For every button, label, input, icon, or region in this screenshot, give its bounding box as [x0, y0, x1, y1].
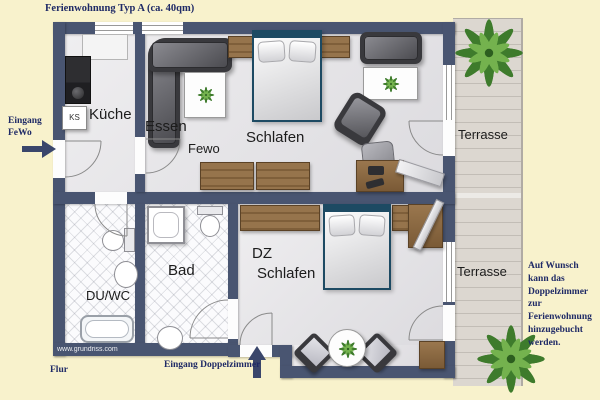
door-opening-fewo-entrance	[53, 140, 65, 178]
window-fewo-terrace	[443, 65, 455, 120]
door-opening-duwc	[95, 192, 127, 204]
label-dz-2: Schlafen	[257, 265, 315, 282]
label-flur: Flur	[50, 365, 68, 375]
fridge-box: KS	[62, 106, 87, 130]
round-table	[328, 329, 366, 367]
label-bath: Bad	[168, 262, 195, 279]
window-dining	[142, 22, 183, 34]
window-kitchen	[95, 22, 133, 34]
desk-item	[368, 166, 384, 175]
sideboard	[256, 162, 310, 190]
door-opening-kitchen	[135, 137, 145, 174]
terrace-divider	[455, 193, 521, 198]
terrace-upper-deck	[453, 18, 523, 196]
label-dz-1: DZ	[252, 245, 272, 262]
bed-headboard	[323, 204, 391, 212]
label-duwc: DU/WC	[86, 288, 130, 303]
label-living: Fewo	[188, 141, 220, 156]
bed-fewo	[252, 30, 322, 122]
door-opening-terrace-upper	[443, 120, 455, 156]
label-entrance-dz: Eingang Doppelzimmer	[164, 360, 260, 370]
sideboard	[200, 162, 254, 190]
toilet-bowl	[200, 215, 220, 237]
pillow	[328, 214, 355, 237]
toilet-bowl	[102, 230, 124, 251]
dining-coffee-table	[184, 72, 226, 118]
shower	[147, 206, 185, 244]
label-terrace-upper: Terrasse	[458, 127, 508, 142]
pillow	[257, 40, 285, 63]
page-title: Ferienwohnung Typ A (ca. 40qm)	[45, 3, 194, 14]
bed-headboard	[252, 30, 322, 38]
kitchen-stove	[65, 56, 91, 104]
sofa-fewo	[360, 32, 422, 64]
fewo-coffee-table	[363, 67, 418, 100]
window-dz-terrace	[443, 242, 455, 302]
fridge-label: KS	[69, 113, 80, 122]
pillow	[358, 214, 385, 237]
label-entrance-fewo-2: FeWo	[8, 128, 32, 138]
note-booking: Auf Wunsch kann das Doppelzimmer zur Fer…	[528, 260, 598, 350]
plant-icon	[197, 86, 215, 104]
wall-left	[53, 22, 65, 356]
label-terrace-lower: Terrasse	[457, 264, 507, 279]
bathtub	[80, 315, 134, 343]
plant-icon	[382, 75, 400, 93]
sink	[114, 261, 138, 288]
toilet-tank	[197, 206, 223, 215]
toilet-tank	[124, 228, 135, 252]
door-opening-terrace-lower	[443, 305, 455, 341]
bed-dz	[323, 204, 391, 290]
arrow-fewo-entrance-icon	[22, 140, 56, 158]
label-dining: Essen	[145, 118, 187, 135]
pillow	[288, 40, 316, 63]
label-sleeping-upper: Schlafen	[246, 129, 304, 146]
corner-sofa-horizontal	[148, 38, 232, 72]
sideboard-dz	[240, 205, 320, 231]
plant-icon	[338, 339, 358, 359]
door-opening-bad	[228, 299, 238, 339]
floor-plan: KS	[0, 0, 600, 400]
doormat	[419, 341, 445, 369]
terrace-lower-deck	[453, 196, 523, 386]
door-opening-dz-entrance	[240, 345, 272, 357]
watermark: www.grundriss.com	[57, 346, 118, 353]
label-entrance-fewo-1: Eingang	[8, 116, 42, 126]
sink	[157, 326, 183, 350]
label-kitchen: Küche	[89, 106, 132, 123]
